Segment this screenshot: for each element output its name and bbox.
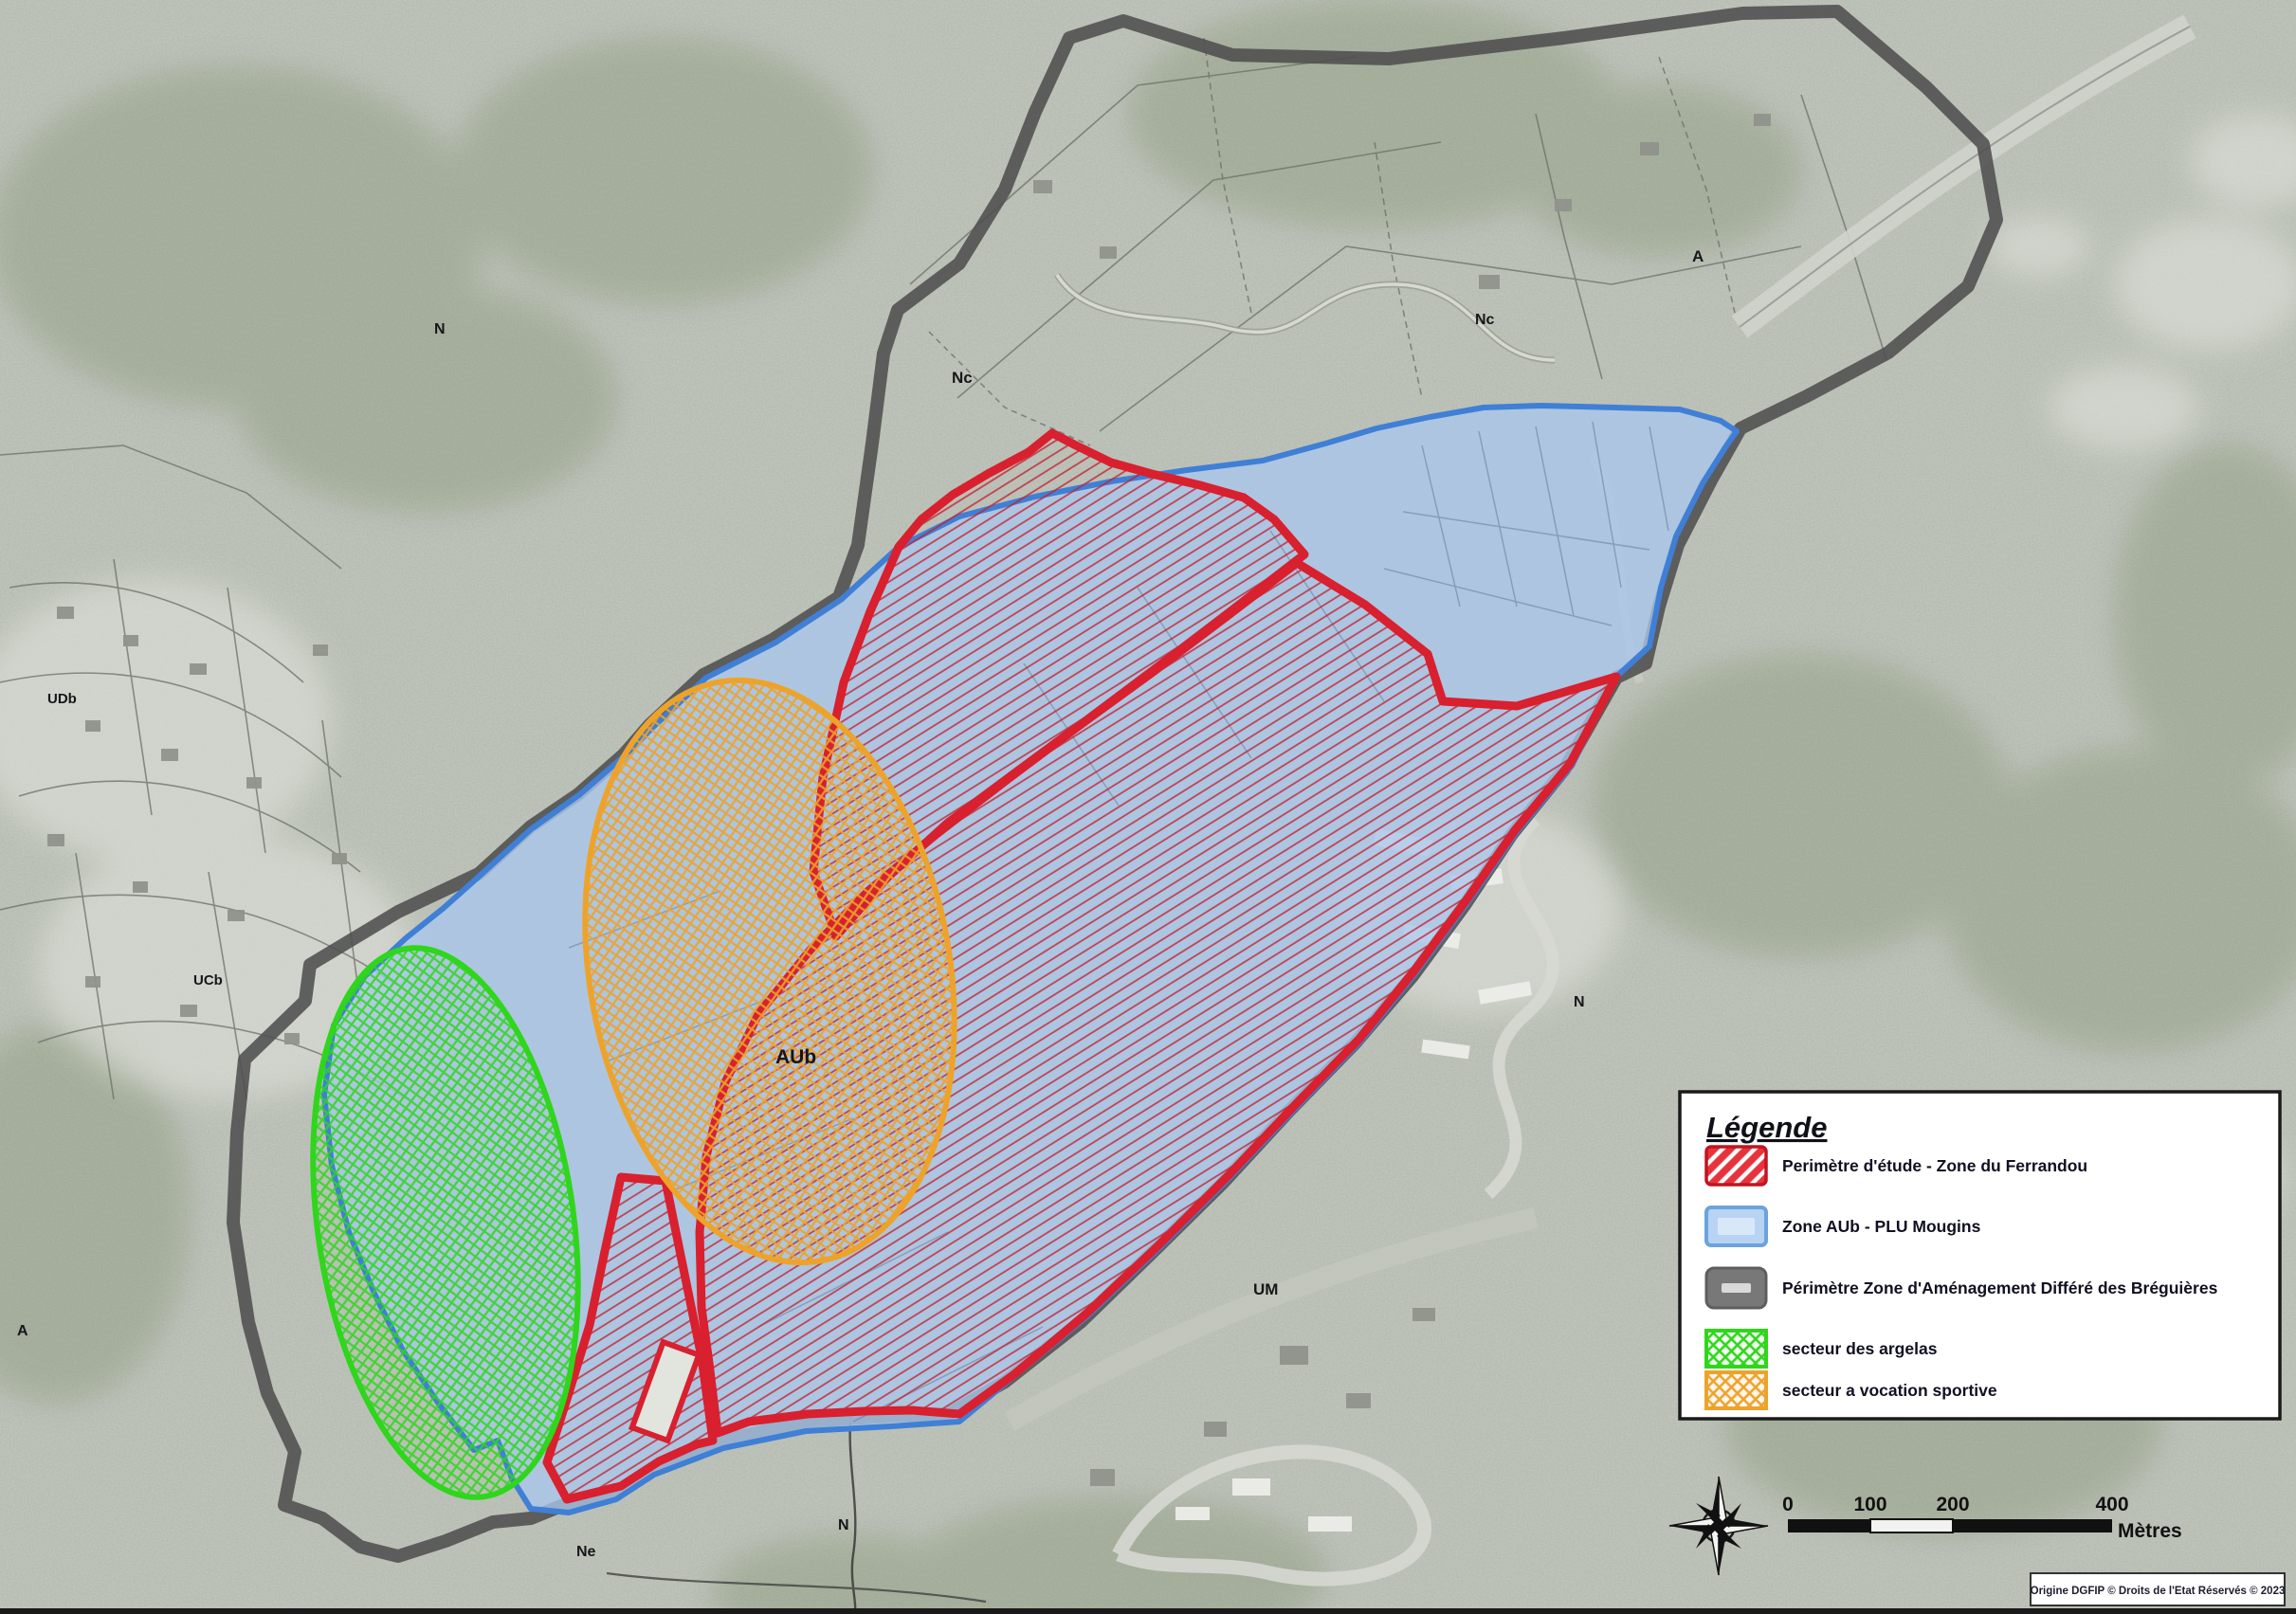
attribution-text: Origine DGFIP © Droits de l'Etat Réservé… bbox=[2031, 1586, 2286, 1597]
legend-item-label: Périmètre Zone d'Aménagement Différé des… bbox=[1782, 1279, 2218, 1297]
legend-item-label: Zone AUb - PLU Mougins bbox=[1782, 1217, 1981, 1236]
zone-label: N bbox=[1574, 994, 1585, 1010]
zone-label: N bbox=[434, 321, 446, 337]
legend-item-label: Perimètre d'étude - Zone du Ferrandou bbox=[1782, 1156, 2087, 1175]
scale-tick: 400 bbox=[2095, 1494, 2128, 1515]
zone-label: Nc bbox=[1475, 312, 1495, 328]
zone-label: UM bbox=[1253, 1280, 1278, 1298]
scale-tick: 200 bbox=[1936, 1494, 1969, 1515]
zone-label: AUb bbox=[775, 1046, 816, 1068]
zone-label: A bbox=[17, 1323, 28, 1339]
attribution-box: Origine DGFIP © Droits de l'Etat Réservé… bbox=[2031, 1573, 2286, 1605]
zone-label: N bbox=[838, 1517, 849, 1533]
page-border-bottom bbox=[0, 1608, 2296, 1614]
zone-label: UDb bbox=[47, 691, 77, 707]
scale-unit: Mètres bbox=[2118, 1520, 2182, 1542]
zone-label: Ne bbox=[576, 1544, 596, 1560]
legend-item-label: secteur des argelas bbox=[1782, 1339, 1938, 1358]
scale-tick: 100 bbox=[1853, 1494, 1886, 1515]
zone-label: A bbox=[1692, 247, 1704, 265]
legend-box: Légende Perimètre d'étude - Zone du Ferr… bbox=[1680, 1092, 2280, 1419]
zone-label: UCb bbox=[193, 972, 223, 988]
legend-title: Légende bbox=[1706, 1111, 1827, 1144]
planning-map-canvas: N Nc Nc A UDb UCb A AUb UM N Ne N Légend… bbox=[0, 0, 2296, 1614]
scale-tick: 0 bbox=[1782, 1494, 1794, 1515]
zone-label: Nc bbox=[952, 369, 973, 387]
legend-item-label: secteur a vocation sportive bbox=[1782, 1381, 1997, 1400]
